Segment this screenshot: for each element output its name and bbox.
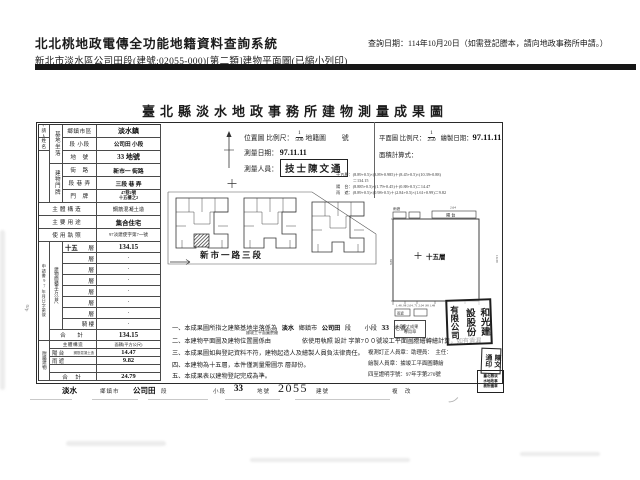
footer-subsection-label: 小段 [213, 387, 226, 395]
floor-area-value: · [97, 286, 161, 297]
footer-lot-value: 33 [234, 383, 243, 393]
surveyor-row: 測量人員： 技士陳文通 [244, 159, 348, 177]
footer-township-value: 淡水 [62, 385, 77, 396]
area-calc-label: 面積計算式： [379, 150, 417, 159]
lane-label: 段 巷 弄 [63, 177, 97, 190]
floor-area-value: · [97, 308, 161, 319]
location-map-scale-row: 位置圖 比例尺： 1 500 地籍圖 號 [244, 131, 349, 143]
margin-pen-note: 4m [24, 304, 31, 312]
survey-date-label: 測量日期： [244, 150, 278, 157]
dim-left: 8.89 [390, 259, 393, 265]
footer-underline [295, 399, 390, 400]
footer-building-number: 2055 [278, 381, 308, 396]
township-value: 淡水鎮 [97, 125, 161, 138]
annex-blank-value [97, 365, 161, 373]
applicant-name-label: 姓 名 [39, 138, 50, 151]
floor-unit: 層 [88, 254, 94, 263]
footer-township-label: 鄉鎮市 [100, 387, 120, 395]
balcony-label: 陽 台 [446, 212, 455, 219]
scan-smudge [0, 230, 5, 390]
subject-unit-hatched [194, 234, 209, 247]
footer-section-label: 段 [161, 387, 168, 395]
building-info-table: 申請人 姓 名 基地坐落 建物門牌 鄉鎮市區 淡水鎮 段 小段 公司田 小段 地… [38, 124, 161, 381]
footer-underline [148, 399, 208, 400]
floor-unit: 層 [88, 276, 94, 285]
annex-canopy-label: 雨 遮 [52, 357, 64, 365]
personal-seal-col2: 通印 [483, 354, 490, 368]
footer-recheck-label: 複 改 [392, 387, 413, 395]
pen-mark: ノ [445, 390, 462, 409]
scan-smudge [250, 458, 410, 462]
building-block-3 [312, 202, 364, 252]
lot-number-label: 地 號 [63, 151, 97, 164]
usage-value: 集合住宅 [97, 216, 161, 229]
personal-seal-col1: 陳文 [492, 354, 499, 368]
section-value: 公司田 小段 [97, 138, 161, 151]
floor-row-label: 十五 層 [63, 242, 97, 253]
survey-result-stamp-line2: 專用章 [404, 329, 417, 334]
sheet-number-label: 號 [342, 132, 349, 142]
plan-scale-label: 平面圖 比例尺： [379, 133, 425, 142]
floor-row-label: 層 [63, 253, 97, 264]
survey-result-stamp: 複丈成果 專用章 [394, 320, 426, 338]
lane-value: 三段 巷 弄 [97, 177, 161, 190]
receipt-info-vertical: 申請書97年月日字第號 [39, 242, 50, 341]
form-title: 臺北縣淡水地政事務所建物測量成果圖 [95, 101, 495, 120]
building-block-2 [244, 198, 296, 248]
system-title: 北北桃地政電傳全功能地籍資料查詢系統 [35, 33, 278, 52]
annex-balcony-label: 陽 台 [52, 349, 64, 357]
floor-area-side-label: 建物面積平方公尺 [50, 242, 63, 330]
township-label: 鄉鎮市區 [63, 125, 97, 138]
query-date: 查詢日期：114年10月20日（如需登記謄本，請向地政事務所申請。） [368, 38, 608, 49]
annex-balcony-value: 14.47 [97, 349, 161, 357]
usage-label: 主要用途 [39, 216, 97, 229]
note-3: 三、本成果圖如與登記資料不符，建物起造人及繪製人員負法律責任。 [172, 348, 364, 357]
floor-row-label: 層 [63, 297, 97, 308]
street-value: 新市一 街路 [97, 164, 161, 177]
floor-unit: 層 [88, 287, 94, 296]
annex-total-value: 24.79 [97, 373, 161, 381]
floor-area-value: · [97, 264, 161, 275]
note1-section-value: 公司田 [322, 325, 341, 332]
arcade-unit: 騎 樓 [82, 320, 94, 328]
footer-underline [92, 399, 138, 400]
cadastral-map-label: 地籍圖 [306, 132, 326, 142]
annex-balcony-struct: 鋼筋混凝土造 [74, 350, 94, 355]
company-seal: 和光建 設股份 有限公司 [445, 298, 493, 346]
arcade-row-label: 騎 樓 [63, 319, 97, 330]
location-scale-label: 位置圖 比例尺： [244, 132, 293, 142]
draw-date-label: 繪製日期： [441, 133, 473, 142]
note1-subsection-label: 小段 [365, 325, 377, 332]
door-plate-line2: 十五樓之2 [119, 196, 138, 201]
note1-township-label: 鄉鎮市 [299, 325, 318, 332]
floor-unit: 層 [88, 265, 94, 274]
recheck-stamp-line: 複測訂正人員章：助理員： 主任： [368, 348, 452, 356]
note-2: 二、本建物平面圖及建物位置圖係由 依使用執照 設計 字第7００號竣工平面圖謄繪轉… [172, 336, 481, 345]
license-value: 97淡建使字第7一號 [97, 229, 161, 242]
floor-number: 十五 [65, 243, 78, 252]
dim-top: 2.64 [450, 206, 456, 210]
unit-cross-mark [415, 252, 422, 259]
applicant-blank-cell [39, 151, 50, 203]
company-seal-col2: 設股份 [463, 308, 473, 337]
site-plan-drawing: 新市一路三段 [166, 176, 378, 270]
section-label: 段 小段 [63, 138, 97, 151]
plan-scale-fraction: 1 250 [427, 131, 435, 143]
license-label: 使用執照 [39, 229, 97, 242]
floor-row-label: 層 [63, 275, 97, 286]
surveyor-label: 測量人員： [244, 163, 278, 173]
scale-denominator: 500 [295, 138, 303, 144]
survey-date-row: 測量日期： 97.11.11 [244, 147, 307, 157]
floor-row-label: 層 [63, 286, 97, 297]
area-total-label: 合 計 [50, 330, 97, 341]
header-divider-bar [35, 64, 636, 70]
annex-area-header: 面積(平方公尺) [97, 341, 161, 349]
dim-ticks [391, 219, 479, 305]
office-stamp-row: 務所圖章 [478, 384, 503, 389]
canopy-top-label: 雨遮 [393, 206, 401, 211]
footer-underline [225, 399, 280, 400]
footer-lot-label: 地號 [257, 387, 270, 395]
note-5: 五、本成果表以建物登記完成為準。 [172, 371, 271, 380]
dim-bottom: 1.48 .98 2.04 .71 2.04 .98 1.48 [396, 304, 435, 308]
floor-area-value: 134.15 [97, 242, 161, 253]
office-registry-stamp: 臺北縣淡 水地政事 務所圖章 [477, 370, 504, 393]
street-label: 街 路 [63, 164, 97, 177]
footer-section-value: 公司田 [133, 385, 156, 396]
area-total-value: 134.15 [97, 330, 161, 341]
floor-area-value: · [97, 275, 161, 286]
north-arrow-icon [222, 128, 236, 172]
footer-building-label: 建號 [316, 387, 329, 395]
floor-unit: 層 [88, 298, 94, 307]
annex-side-label: 附屬建物 [39, 341, 50, 381]
canopy-bottom-label: 雨遮 [397, 311, 404, 316]
arcade-area-value: · [97, 319, 161, 330]
footer-underline [30, 399, 72, 400]
annex-row-canopy: 雨 遮 [50, 357, 97, 365]
structure-value: 鋼筋混凝土造 [97, 203, 161, 216]
boundary-cert-line: 四至證明字號：97年字第270號 [368, 370, 441, 378]
applicant-label: 申請人 [39, 125, 50, 138]
survey-cross-mark [228, 179, 237, 188]
door-plate-value: 47巷2號 十五樓之2 [97, 190, 161, 203]
floor-unit: 層 [88, 309, 94, 318]
note1-lot-value: 33 [382, 323, 390, 332]
structure-label: 主體構造 [39, 203, 97, 216]
annex-total-label: 合 計 [50, 373, 97, 381]
plan-scale-row: 平面圖 比例尺： 1 250 繪製日期： 97.11.11 [379, 131, 501, 143]
scan-smudge [66, 441, 166, 446]
floor-row-label: 層 [63, 264, 97, 275]
floor-area-value: · [97, 253, 161, 264]
floor-area-value: · [97, 297, 161, 308]
note-1: 一、本成果圖所指之建築基地坐落係為 淡水 鄉鎮市 公司田 段 小段 33 地號。 [172, 323, 412, 332]
company-seal-col1: 和光建 [478, 307, 488, 336]
floor-label: 十五層 [426, 252, 446, 261]
note1-section-label: 段 [345, 325, 351, 332]
plan-scale-denominator: 250 [427, 138, 435, 144]
floor-row-label: 層 [63, 308, 97, 319]
scan-smudge [520, 452, 600, 456]
note-4: 四、本建物為十五層，本件僅測量需圖示 層部份。 [172, 360, 310, 369]
annex-row-blank [50, 365, 97, 373]
drafter-stamp-line: 繪製人員章：據竣工平面圖轉繪 [368, 359, 443, 367]
address-group-label: 建物門牌 [50, 164, 63, 203]
survey-date-value: 97.11.11 [280, 148, 307, 157]
note1-township-value: 淡水 [282, 325, 294, 332]
annex-structure-header: 主體構造 [50, 341, 97, 349]
door-plate-label: 門 牌 [63, 190, 97, 203]
dim-right: 10.39 [495, 255, 499, 263]
annex-row-balcony: 陽 台 鋼筋混凝土造 [50, 349, 97, 357]
street-name-label: 新市一路三段 [200, 250, 263, 260]
draw-date-value: 97.11.11 [473, 132, 502, 142]
lot-number-value: 33 地號 [97, 151, 161, 164]
location-scale-fraction: 1 500 [295, 131, 303, 143]
annex-canopy-value: 9.82 [97, 357, 161, 365]
site-group-label: 基地坐落 [50, 125, 63, 164]
company-seal-col3: 有限公司 [450, 305, 460, 339]
floor-unit: 層 [88, 243, 94, 252]
